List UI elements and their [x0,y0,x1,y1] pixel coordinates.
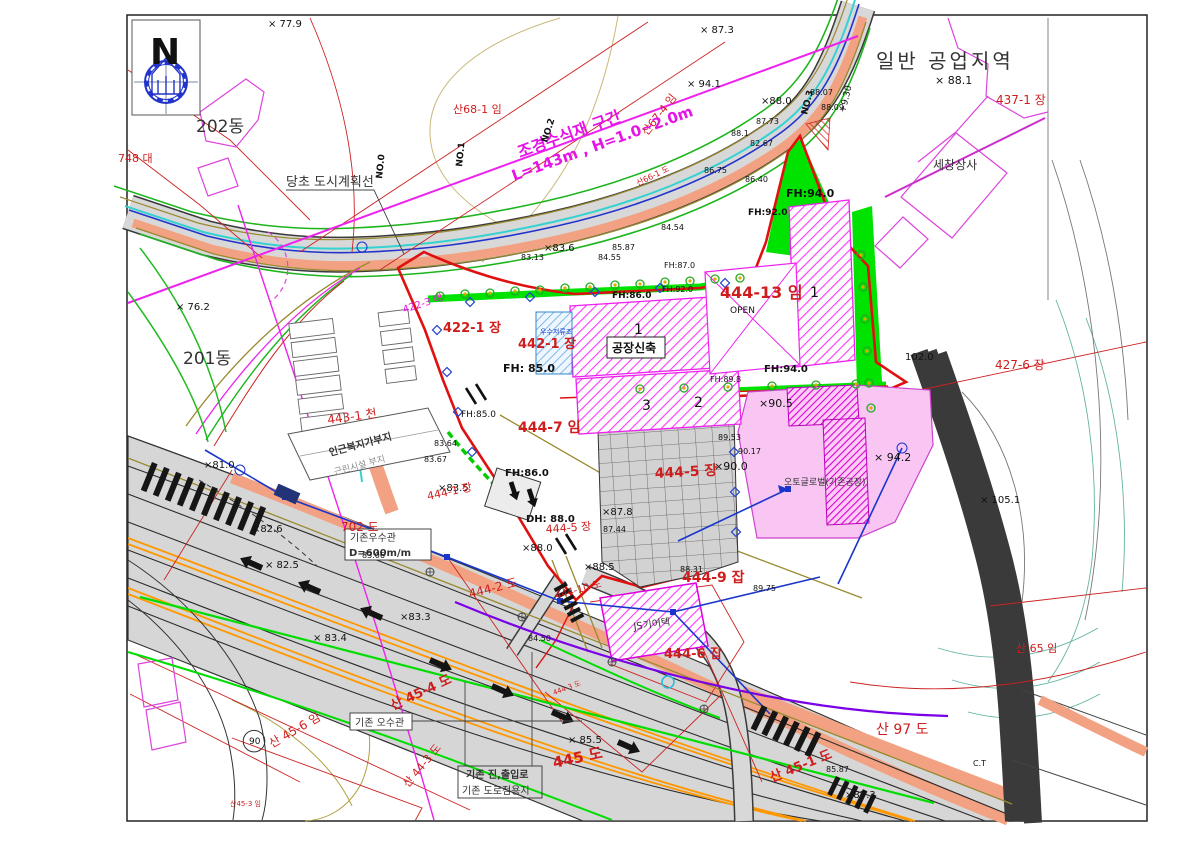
svg-text:83.67: 83.67 [424,455,447,464]
map-label: 산68-1 임 [453,103,502,116]
svg-text:87.44: 87.44 [603,525,626,534]
svg-text:FH:92.0: FH:92.0 [662,285,693,294]
svg-text:444-5 장: 444-5 장 [654,462,717,482]
svg-text:90: 90 [249,737,261,747]
map-label: 우수저류조 [540,327,573,336]
svg-text:FH:86.0: FH:86.0 [612,291,652,301]
map-label: 442-1 장 [518,336,576,352]
map-label: ×83.3 [400,612,431,623]
svg-text:90.17: 90.17 [738,447,761,456]
svg-text:C.T: C.T [973,759,986,768]
svg-text:82.67: 82.67 [750,139,773,148]
svg-text:기존 오수관: 기존 오수관 [355,717,404,729]
svg-text:× 94.2: × 94.2 [874,451,911,464]
map-label: 437-1 장 [996,93,1046,107]
svg-text:기존우수관: 기존우수관 [350,532,396,544]
map-label: 89.75 [753,584,776,593]
map-label: N [150,32,180,73]
svg-text:×81.0: ×81.0 [204,460,235,471]
svg-text:×88.5: ×88.5 [584,562,615,573]
map-label: × 94.2 [874,451,911,464]
svg-text:× 94.1: × 94.1 [687,79,721,90]
map-label: 기존 오수관 [355,717,404,729]
map-label: 748 대 [118,152,153,165]
svg-text:× 88.1: × 88.1 [935,74,972,87]
svg-text:FH: 85.0: FH: 85.0 [503,362,555,375]
svg-text:×82.6: ×82.6 [252,524,283,535]
map-label: FH:86.0 [505,468,549,479]
svg-text:우수저류조: 우수저류조 [540,327,573,336]
svg-text:442-1 장: 442-1 장 [518,336,576,352]
svg-text:1: 1 [634,322,643,338]
map-label: 2 [694,395,703,411]
map-label: FH:89.8 [710,375,741,384]
svg-text:86.75: 86.75 [704,166,727,175]
svg-text:×90.5: ×90.5 [759,397,793,410]
map-label: ×87.8 [602,507,633,518]
map-label: ×83.6 [544,243,575,254]
map-label: × 105.1 [980,495,1020,506]
svg-text:88.09: 88.09 [821,103,844,112]
svg-text:일반 공업지역: 일반 공업지역 [876,49,1014,73]
map-label: FH:94.0 [764,364,808,375]
svg-text:88.07: 88.07 [810,88,833,97]
svg-text:×83.3: ×83.3 [400,612,431,623]
map-label: 202동 [196,117,244,137]
map-label: 444-6 잡 [664,647,722,662]
map-label: 기존우수관 [350,532,396,544]
svg-text:FH:85.0: FH:85.0 [461,410,496,420]
map-label: ×88.0 [761,96,792,107]
svg-text:×87.8: ×87.8 [602,507,633,518]
map-label: 88.1 [731,129,749,138]
map-label: 427-6 장 [995,358,1045,372]
svg-text:× 82.5: × 82.5 [265,560,299,571]
map-label: 87.73 [756,117,779,126]
map-label: 1 [810,285,819,301]
svg-text:×88.0: ×88.0 [522,543,553,554]
map-label: 세창상사 [933,158,977,172]
svg-text:427-6 장: 427-6 장 [995,358,1045,372]
map-label: 1 [634,322,643,338]
svg-text:×90.0: ×90.0 [714,460,748,473]
svg-text:83.13: 83.13 [521,253,544,262]
map-label: 102.0 [905,352,934,363]
svg-text:× 105.1: × 105.1 [980,495,1020,506]
svg-text:× 83.4: × 83.4 [313,633,347,644]
map-label: 83.06 [362,551,385,560]
map-label: 87.44 [603,525,626,534]
svg-text:FH:86.0: FH:86.0 [505,468,549,479]
svg-text:444-13 임: 444-13 임 [720,283,803,302]
svg-text:87.73: 87.73 [756,117,779,126]
svg-text:437-1 장: 437-1 장 [996,93,1046,107]
map-label: ×90.5 [759,397,793,410]
svg-text:444-6 잡: 444-6 잡 [664,647,722,662]
map-label: 당초 도시계획선 [286,175,374,190]
svg-text:기존 도로점용지: 기존 도로점용지 [462,785,530,797]
svg-text:산45-3 임: 산45-3 임 [230,799,261,808]
svg-text:× 76.2: × 76.2 [176,302,210,313]
svg-text:102.0: 102.0 [905,352,934,363]
map-label: 84.55 [598,253,621,262]
map-label: ×88.5 [584,562,615,573]
map-label: 산 65 임 [1016,642,1057,655]
svg-text:FH:89.8: FH:89.8 [710,375,741,384]
svg-text:FH:94.0: FH:94.0 [786,187,835,200]
map-label: × 94.1 [687,79,721,90]
svg-text:산 97 도: 산 97 도 [876,722,929,738]
map-label: 오토글로벌(기존공장) [784,477,866,488]
svg-text:1: 1 [810,285,819,301]
map-label: 84.50 [528,634,551,643]
svg-text:83.64: 83.64 [434,439,457,448]
svg-text:× 87.3: × 87.3 [700,25,734,36]
svg-text:748 대: 748 대 [118,152,153,165]
map-label: 산 97 도 [876,722,929,738]
svg-text:422-1 장: 422-1 장 [443,320,501,336]
map-label: 86.40 [745,175,768,184]
map-label: 83.67 [424,455,447,464]
map-label: ×90.0 [714,460,748,473]
map-label: 201동 [183,349,231,369]
svg-text:산 65 임: 산 65 임 [1016,642,1057,655]
map-label: 기존 진,출입로 [466,768,528,781]
map-label: 90.17 [738,447,761,456]
map-label: 444-7 임 [518,420,581,436]
map-label: FH:85.0 [461,410,496,420]
map-label: 산45-3 임 [230,799,261,808]
map-label: 89.53 [718,433,741,442]
svg-text:89.53: 89.53 [718,433,741,442]
svg-text:세창상사: 세창상사 [933,158,977,172]
svg-text:× 77.9: × 77.9 [268,19,302,30]
svg-text:×83.6: ×83.6 [544,243,575,254]
svg-text:×88.0: ×88.0 [761,96,792,107]
map-label: 84.54 [661,223,684,232]
map-label: FH:86.0 [612,291,652,301]
map-label: ×87.3 [845,790,876,801]
svg-text:FH:92.0: FH:92.0 [748,208,788,218]
map-label: 444-9 잡 [682,569,745,586]
existing-factory-building [823,418,869,525]
svg-text:FH:87.0: FH:87.0 [664,261,695,270]
map-label: C.T [973,759,986,768]
svg-text:85.87: 85.87 [612,243,635,252]
map-label: 일반 공업지역 [876,49,1014,73]
svg-text:201동: 201동 [183,349,231,369]
svg-text:85.87: 85.87 [826,765,849,774]
map-label: FH: 85.0 [503,362,555,375]
svg-text:산68-1 임: 산68-1 임 [453,103,502,116]
map-label: 83.13 [521,253,544,262]
svg-text:OPEN: OPEN [730,306,755,316]
svg-text:FH:94.0: FH:94.0 [764,364,808,375]
svg-text:202동: 202동 [196,117,244,137]
map-label: FH:87.0 [664,261,695,270]
map-label: ×81.0 [204,460,235,471]
svg-text:3: 3 [642,398,651,414]
map-label: 422-1 장 [443,320,501,336]
svg-text:702 도: 702 도 [341,520,379,534]
svg-text:공장신축: 공장신축 [612,340,656,355]
svg-text:86.40: 86.40 [745,175,768,184]
svg-text:2: 2 [694,395,703,411]
map-label: 86.75 [704,166,727,175]
map-label: 88.09 [821,103,844,112]
map-label: OPEN [730,306,755,316]
svg-text:444-9 잡: 444-9 잡 [682,569,745,586]
map-label: 88.07 [810,88,833,97]
map-label: 82.67 [750,139,773,148]
map-label: × 77.9 [268,19,302,30]
map-label: × 83.4 [313,633,347,644]
svg-text:84.55: 84.55 [598,253,621,262]
svg-text:오토글로벌(기존공장): 오토글로벌(기존공장) [784,477,866,488]
map-label: 85.87 [826,765,849,774]
map-label: 85.87 [612,243,635,252]
map-label: 기존 도로점용지 [462,785,530,797]
map-label: × 87.3 [700,25,734,36]
svg-text:83.06: 83.06 [362,551,385,560]
svg-text:89.75: 89.75 [753,584,776,593]
site-plan-map: N× 77.9× 87.3일반 공업지역× 88.1437-1 장세창상사202… [0,0,1200,849]
svg-text:444-7 임: 444-7 임 [518,420,581,436]
map-label: ×88.0 [522,543,553,554]
map-label: 3 [642,398,651,414]
map-label: × 88.1 [935,74,972,87]
map-label: FH:94.0 [786,187,835,200]
map-label: 공장신축 [607,337,665,358]
map-label: 702 도 [341,520,379,534]
map-label: 444-5 장 [654,462,717,482]
svg-text:×87.3: ×87.3 [845,790,876,801]
map-label: 83.64 [434,439,457,448]
map-label: FH:92.0 [748,208,788,218]
svg-text:88.1: 88.1 [731,129,749,138]
map-label: × 82.5 [265,560,299,571]
map-label: 444-13 임 [720,283,803,302]
svg-text:당초 도시계획선: 당초 도시계획선 [286,175,374,190]
parking-grid-area [598,420,738,587]
svg-text:기존 진,출입로: 기존 진,출입로 [466,768,528,781]
svg-text:N: N [150,32,180,73]
map-label: FH:92.0 [662,285,693,294]
map-label: × 76.2 [176,302,210,313]
svg-text:84.50: 84.50 [528,634,551,643]
svg-text:84.54: 84.54 [661,223,684,232]
map-label: ×82.6 [252,524,283,535]
